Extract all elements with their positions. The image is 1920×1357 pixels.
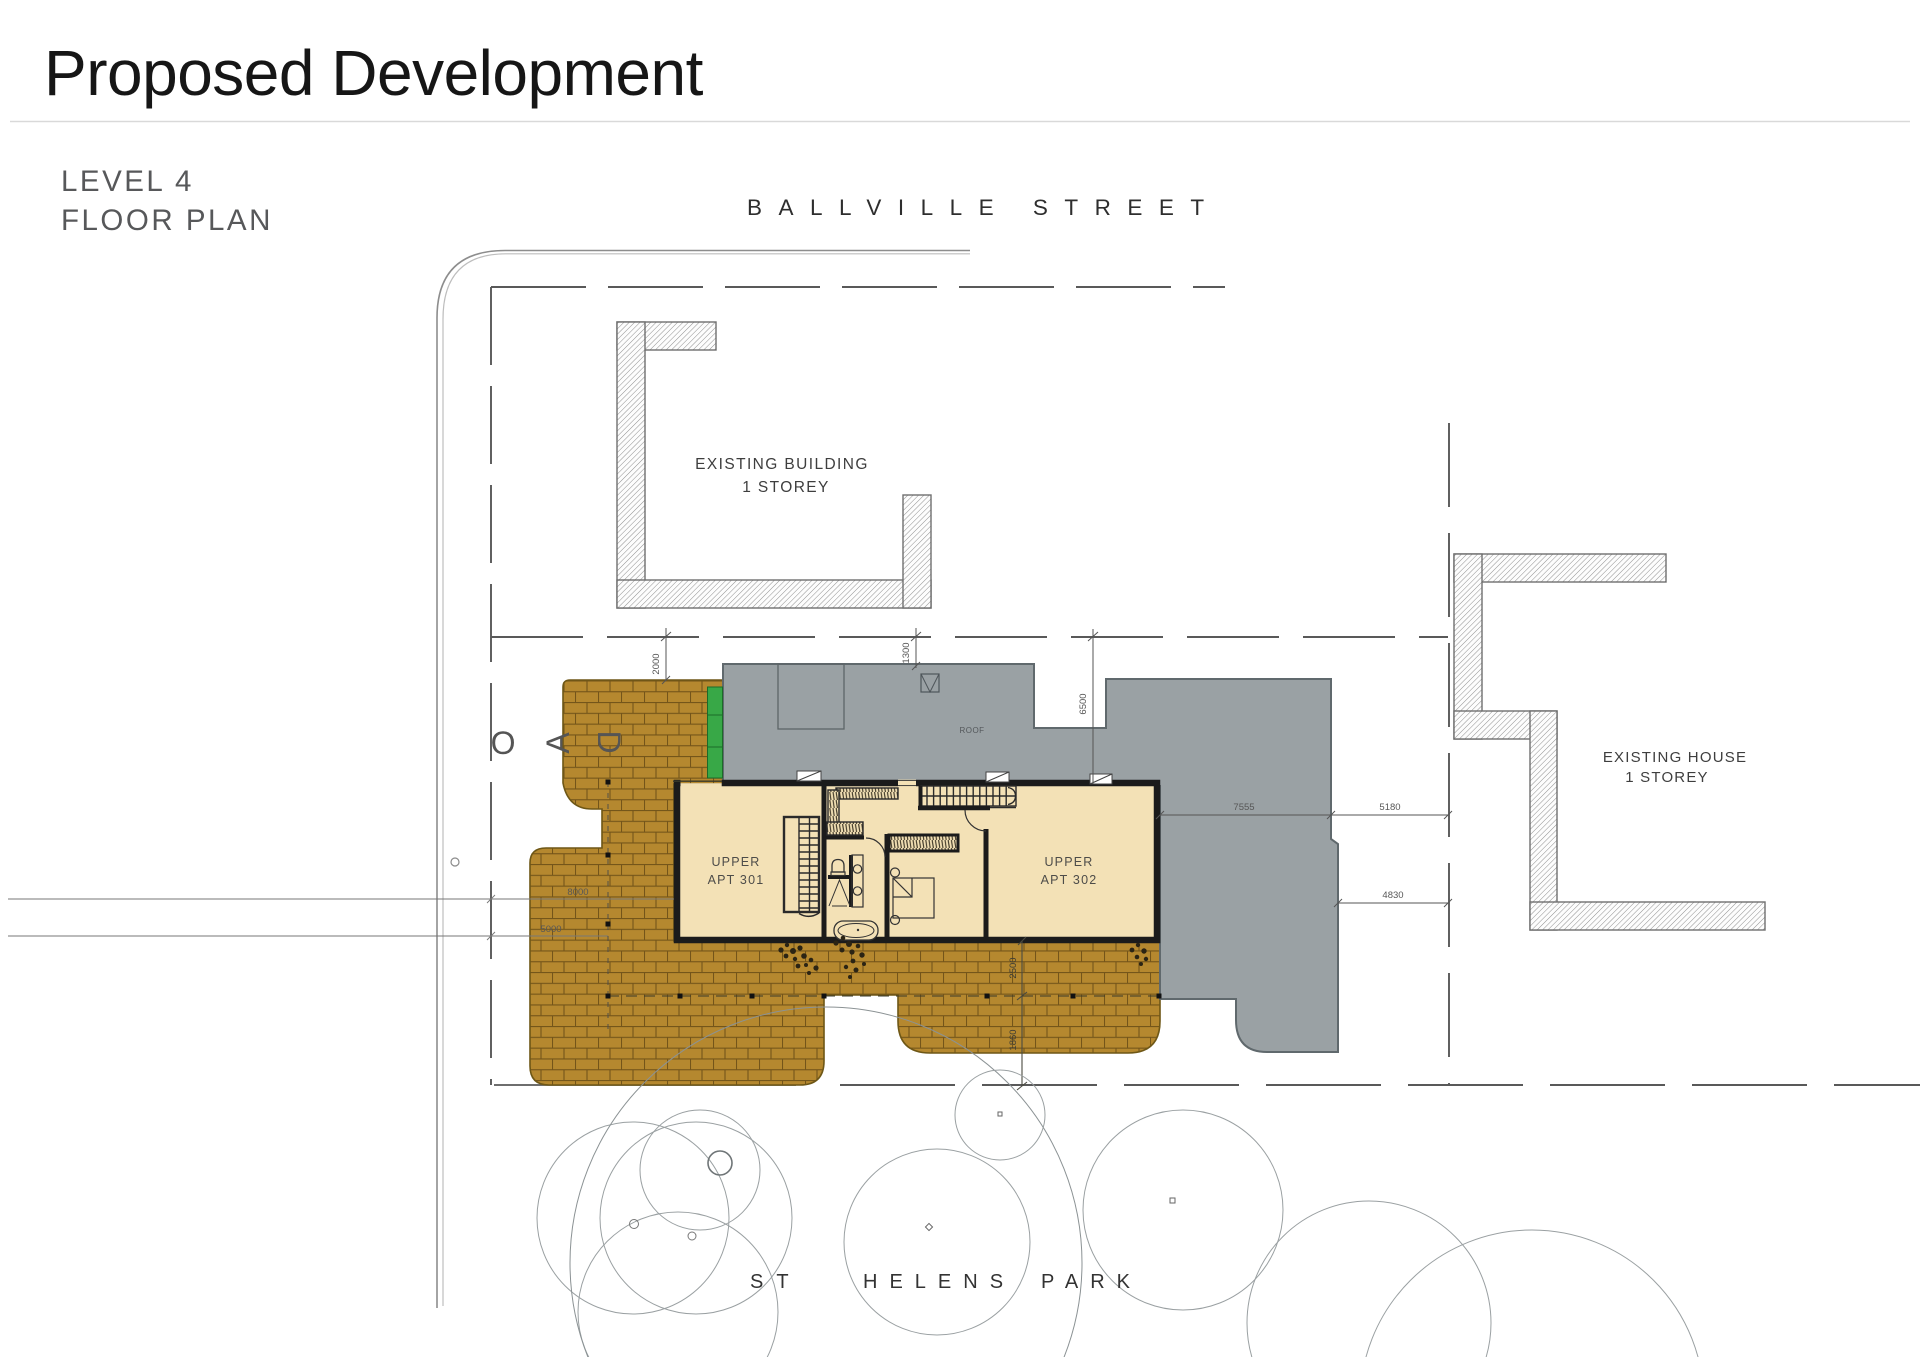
svg-text:EXISTING BUILDING: EXISTING BUILDING	[695, 456, 869, 473]
svg-text:6500: 6500	[1078, 693, 1089, 714]
svg-text:1 STOREY: 1 STOREY	[1625, 769, 1709, 786]
svg-text:APT 302: APT 302	[1041, 873, 1098, 887]
svg-text:Proposed Development: Proposed Development	[44, 37, 704, 109]
svg-text:UPPER: UPPER	[1044, 855, 1093, 869]
svg-text:1 STOREY: 1 STOREY	[742, 479, 830, 496]
svg-text:D: D	[591, 730, 627, 753]
svg-text:2000: 2000	[651, 653, 662, 674]
svg-text:1300: 1300	[901, 642, 912, 663]
svg-text:EXISTING HOUSE: EXISTING HOUSE	[1603, 749, 1747, 766]
svg-text:A: A	[540, 732, 576, 754]
svg-text:1860: 1860	[1008, 1029, 1019, 1050]
svg-text:5000: 5000	[540, 924, 561, 935]
svg-text:BALLVILLE STREET: BALLVILLE STREET	[747, 195, 1221, 220]
svg-text:PARK: PARK	[1041, 1271, 1142, 1293]
svg-text:2500: 2500	[1008, 957, 1019, 978]
svg-text:UPPER: UPPER	[711, 855, 760, 869]
svg-text:O: O	[491, 725, 516, 761]
svg-text:ST: ST	[750, 1271, 802, 1293]
svg-text:HELENS: HELENS	[863, 1271, 1015, 1293]
svg-text:LEVEL 4: LEVEL 4	[61, 165, 194, 198]
svg-text:7555: 7555	[1233, 802, 1254, 813]
svg-text:5180: 5180	[1379, 802, 1400, 813]
svg-text:4830: 4830	[1382, 890, 1403, 901]
svg-text:ROOF: ROOF	[959, 726, 984, 735]
svg-text:APT 301: APT 301	[708, 873, 765, 887]
svg-text:8000: 8000	[567, 887, 588, 898]
svg-text:FLOOR PLAN: FLOOR PLAN	[61, 204, 273, 237]
